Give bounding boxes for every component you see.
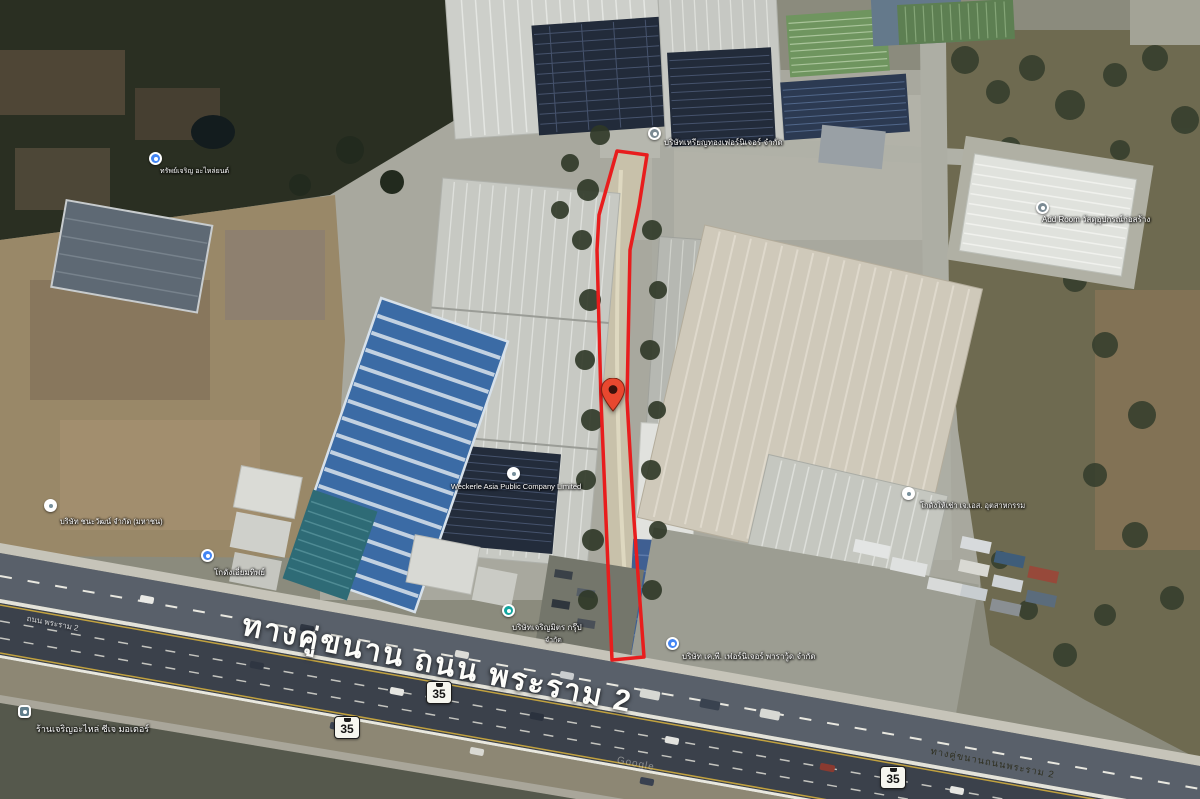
poi-label-line2[interactable]: จำกัด bbox=[545, 635, 562, 646]
pin-body bbox=[602, 378, 625, 411]
shield-crest-icon bbox=[890, 768, 897, 772]
location-pin[interactable] bbox=[601, 378, 625, 412]
poi-label[interactable]: บริษัท เค.พี. เฟอร์นิเจอร์ พาราวู้ด จำกั… bbox=[682, 650, 816, 663]
poi-label[interactable]: ทรัพย์เจริญ อะไหล่ยนต์ bbox=[160, 166, 229, 177]
shield-number: 35 bbox=[340, 723, 353, 735]
satellite-map-viewport[interactable]: ทางคู่ขนาน ถนน พระราม 2 ถนน พระราม 2 ทาง… bbox=[0, 0, 1200, 799]
shield-crest-icon bbox=[344, 718, 351, 722]
route-shield: 35 bbox=[880, 766, 906, 789]
poi-label[interactable]: บริษัทเจริญมิตร กรุ๊ป bbox=[512, 621, 582, 634]
poi-label[interactable]: บริษัทเหรียญทองเฟอร์นิเจอร์ จำกัด bbox=[664, 136, 783, 149]
business-pin-icon[interactable] bbox=[648, 127, 661, 140]
shield-number: 35 bbox=[432, 688, 445, 700]
poi-label[interactable]: Weckerle Asia Public Company Limited bbox=[451, 482, 581, 491]
warehouse-top-1 bbox=[445, 0, 667, 141]
greenhouse-topright bbox=[897, 0, 1015, 45]
poi-label[interactable]: โกดังให้เช่า เจ.เอส. อุตสาหกรรม bbox=[920, 500, 1025, 512]
pin-hole bbox=[609, 385, 618, 394]
business-pin-icon[interactable] bbox=[44, 499, 57, 512]
shield-number: 35 bbox=[886, 773, 899, 785]
route-shield: 35 bbox=[334, 716, 360, 739]
poi-label[interactable]: Add Room วัสดุอุปกรณ์ก่อสร้าง bbox=[1042, 213, 1150, 226]
shield-crest-icon bbox=[436, 683, 443, 687]
business-pin-icon[interactable] bbox=[507, 467, 520, 480]
store-pin-icon[interactable] bbox=[666, 637, 679, 650]
poi-label[interactable]: ร้านเจริญอะไหล่ ซีเจ มอเตอร์ bbox=[36, 722, 149, 736]
route-shield: 35 bbox=[426, 681, 452, 704]
store-pin-icon[interactable] bbox=[201, 549, 214, 562]
poi-label[interactable]: บริษัท ชนะวัฒน์ จำกัด (มหาชน) bbox=[60, 516, 163, 528]
factory-pin-icon[interactable] bbox=[502, 604, 515, 617]
shop-square-icon[interactable] bbox=[18, 705, 31, 718]
warehouse-top-2 bbox=[658, 0, 784, 148]
store-pin-icon[interactable] bbox=[149, 152, 162, 165]
business-pin-icon[interactable] bbox=[902, 487, 915, 500]
poi-label[interactable]: โกดังเอี่ยมทิพย์ bbox=[214, 566, 265, 579]
